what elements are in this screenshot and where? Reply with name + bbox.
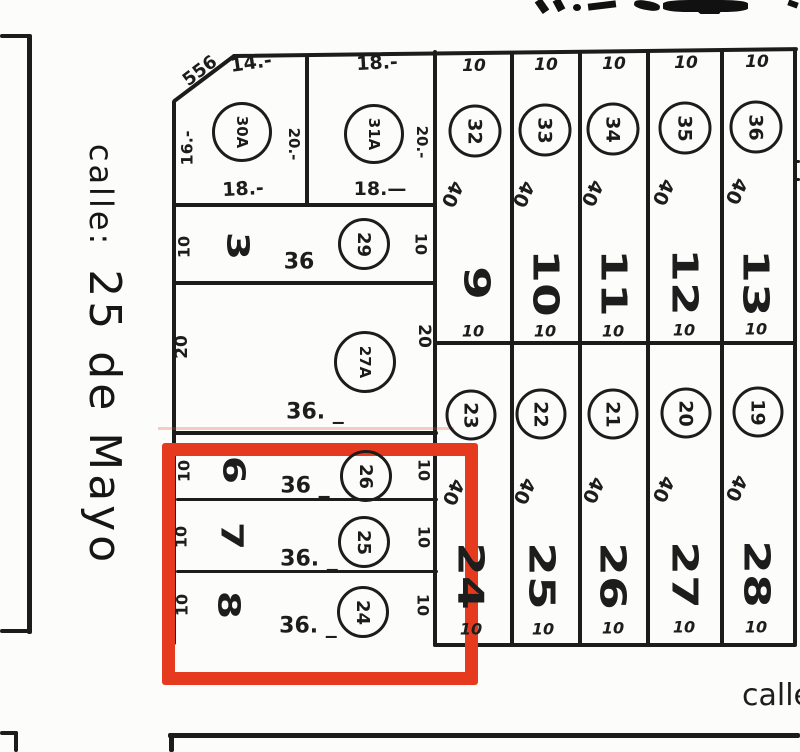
parcel-circle-33: 33 xyxy=(519,104,572,157)
parcel-circle-22-label: 22 xyxy=(530,401,552,427)
west-block-bottom-line xyxy=(0,629,31,633)
line-under-27a xyxy=(172,431,438,435)
parcel-circle-29-label: 29 xyxy=(354,231,375,256)
parcel-circle-24: 24 xyxy=(337,586,389,638)
parcel-circle-21: 21 xyxy=(588,389,639,440)
parcel-circle-33-label: 33 xyxy=(534,117,556,143)
lot-number-27: 27 xyxy=(664,541,705,609)
parcel-circle-19-label: 19 xyxy=(747,399,769,425)
cutoff-stroke xyxy=(535,0,550,14)
parcel-circle-20-label: 20 xyxy=(675,400,697,426)
parcel-circle-32: 32 xyxy=(449,105,502,158)
lot-number-12: 12 xyxy=(664,248,705,316)
parcel-circle-36: 36 xyxy=(730,101,783,154)
parcel-circle-23: 23 xyxy=(446,390,497,441)
dim-27a-frontage: 36. _ xyxy=(286,400,344,425)
dim-27a-right: 20 xyxy=(414,324,434,348)
dim-col2-bottom: 10 xyxy=(534,322,556,341)
dim-col4-bottom: 10 xyxy=(673,321,695,340)
parcel-circle-31a-label: 31A xyxy=(365,118,383,150)
parcel-circle-23-label: 23 xyxy=(460,402,482,428)
parcel-circle-19: 19 xyxy=(733,387,784,438)
parcel-circle-20: 20 xyxy=(661,388,712,439)
column-divider xyxy=(510,52,514,645)
block-bottom-line xyxy=(433,643,797,647)
dim-b2col3-depth: 40 xyxy=(577,473,608,506)
column-divider xyxy=(793,49,797,645)
street-prefix: calle: xyxy=(82,144,120,247)
dim-30a-right: 20.- xyxy=(285,128,303,161)
parcel-circle-30a-label: 30A xyxy=(233,116,251,148)
parcel-circle-26-label: 26 xyxy=(356,463,377,488)
dim-row3-left: 10 xyxy=(175,236,194,258)
street-name-top-cutoff xyxy=(530,0,800,14)
dim-col5-depth: 40 xyxy=(720,174,751,207)
street-name: 25 de Mayo xyxy=(79,269,130,566)
dim-row3-frontage: 36 xyxy=(284,250,315,275)
parcel-circle-35-label: 35 xyxy=(674,115,696,141)
parcel-circle-30a: 30A xyxy=(212,102,272,162)
southwest-block-right-line xyxy=(14,731,18,752)
lot-number-9: 9 xyxy=(456,266,497,300)
dim-row8-left: 10 xyxy=(173,594,192,616)
parcel-circle-36-label: 36 xyxy=(745,114,767,140)
column-divider xyxy=(720,50,724,645)
edge-dash xyxy=(796,160,800,163)
parcel-circle-34: 34 xyxy=(587,103,640,156)
lot-number-7: 7 xyxy=(214,522,249,550)
dim-27a-left: 20 xyxy=(172,335,192,359)
lot-number-8: 8 xyxy=(211,591,246,619)
dim-row6-frontage: 36 _ xyxy=(280,474,329,499)
plat-map-scan: calle: 25 de Mayo 30A 556 14.- 16.- 20.-… xyxy=(0,0,800,752)
parcel-circle-22: 22 xyxy=(516,389,567,440)
cutoff-stroke xyxy=(553,0,566,12)
divider-30a-31a xyxy=(305,56,309,206)
parcel-circle-25-label: 25 xyxy=(354,529,375,554)
parcel-circle-24-label: 24 xyxy=(353,599,374,624)
dim-30a-slant: 556 xyxy=(179,51,222,90)
dim-b2col5-bottom: 10 xyxy=(745,618,767,637)
lot-number-3: 3 xyxy=(220,232,255,260)
lot-number-13: 13 xyxy=(735,249,776,317)
dim-col2-top: 10 xyxy=(534,55,558,75)
cutoff-stroke xyxy=(573,4,581,11)
dim-b2col2-bottom: 10 xyxy=(532,620,554,639)
dim-31a-top: 18.- xyxy=(356,51,399,75)
dim-col1-top: 10 xyxy=(462,56,486,76)
dim-30a-left: 16.- xyxy=(178,131,197,166)
dim-31a-bottom: 18.— xyxy=(354,178,407,200)
west-block-right-line xyxy=(27,34,32,634)
line-under-row3 xyxy=(172,281,436,285)
south-block-top-line xyxy=(168,733,800,738)
parcel-circle-35: 35 xyxy=(659,102,712,155)
cutoff-stroke xyxy=(633,0,660,12)
dim-col1-bottom: 10 xyxy=(462,322,484,341)
dim-row7-frontage: 36. _ xyxy=(280,547,338,572)
column-divider xyxy=(646,51,650,645)
dim-row7-right: 10 xyxy=(415,526,434,548)
dim-30a-top: 14.- xyxy=(229,49,273,77)
edge-dash xyxy=(796,178,800,181)
south-block-left-line xyxy=(169,733,174,752)
parcel-circle-32-label: 32 xyxy=(464,118,486,144)
dim-row3-right: 10 xyxy=(412,233,431,255)
street-label-25-de-mayo: calle: 25 de Mayo xyxy=(76,85,130,625)
lot-number-24: 24 xyxy=(450,542,491,610)
parcel-circle-27a-label: 27A xyxy=(356,346,374,378)
dim-col5-bottom: 10 xyxy=(745,320,767,339)
parcel-circle-31a: 31A xyxy=(344,104,404,164)
dim-row6-right: 10 xyxy=(415,459,434,481)
mid-band-divider-line xyxy=(433,341,797,345)
parcel-circle-25: 25 xyxy=(338,516,390,568)
dim-col4-depth: 40 xyxy=(647,175,678,208)
street-label-bottom: calle xyxy=(742,678,800,713)
dim-row6-left: 10 xyxy=(175,460,194,482)
dim-row8-frontage: 36. _ xyxy=(279,614,337,639)
dim-col3-top: 10 xyxy=(602,54,626,74)
column-divider xyxy=(578,51,582,645)
lot-number-6: 6 xyxy=(216,456,251,484)
dim-b2col1-bottom: 10 xyxy=(460,620,482,639)
lot-number-28: 28 xyxy=(736,540,777,608)
dim-30a-bottom: 18.- xyxy=(222,177,265,201)
dim-row7-left: 10 xyxy=(172,526,191,548)
lot-number-25: 25 xyxy=(521,542,562,610)
parcel-circle-29: 29 xyxy=(338,218,390,270)
dim-col5-top: 10 xyxy=(745,52,769,72)
faint-red-artifact-line xyxy=(158,427,454,430)
dim-31a-right: 20.- xyxy=(413,126,431,159)
dim-b2col4-depth: 40 xyxy=(647,472,678,505)
line-under-30a-31a xyxy=(172,203,436,207)
block-top-line xyxy=(232,47,798,58)
dim-col4-top: 10 xyxy=(674,53,698,73)
parcel-circle-27a: 27A xyxy=(334,331,396,393)
parcel-circle-34-label: 34 xyxy=(602,116,624,142)
lot-number-11: 11 xyxy=(593,249,634,317)
dim-col3-bottom: 10 xyxy=(602,322,624,341)
lot-number-26: 26 xyxy=(592,542,633,610)
dim-b2col4-bottom: 10 xyxy=(673,618,695,637)
dim-row8-right: 10 xyxy=(414,594,433,616)
cutoff-stroke xyxy=(588,0,617,10)
parcel-circle-21-label: 21 xyxy=(602,401,624,427)
dim-col1-depth: 40 xyxy=(436,177,467,210)
dim-b2col3-bottom: 10 xyxy=(602,619,624,638)
parcel-circle-26: 26 xyxy=(340,450,392,502)
lot-number-10: 10 xyxy=(525,249,566,317)
dim-b2col5-depth: 40 xyxy=(720,471,751,504)
cutoff-stroke xyxy=(787,0,798,9)
